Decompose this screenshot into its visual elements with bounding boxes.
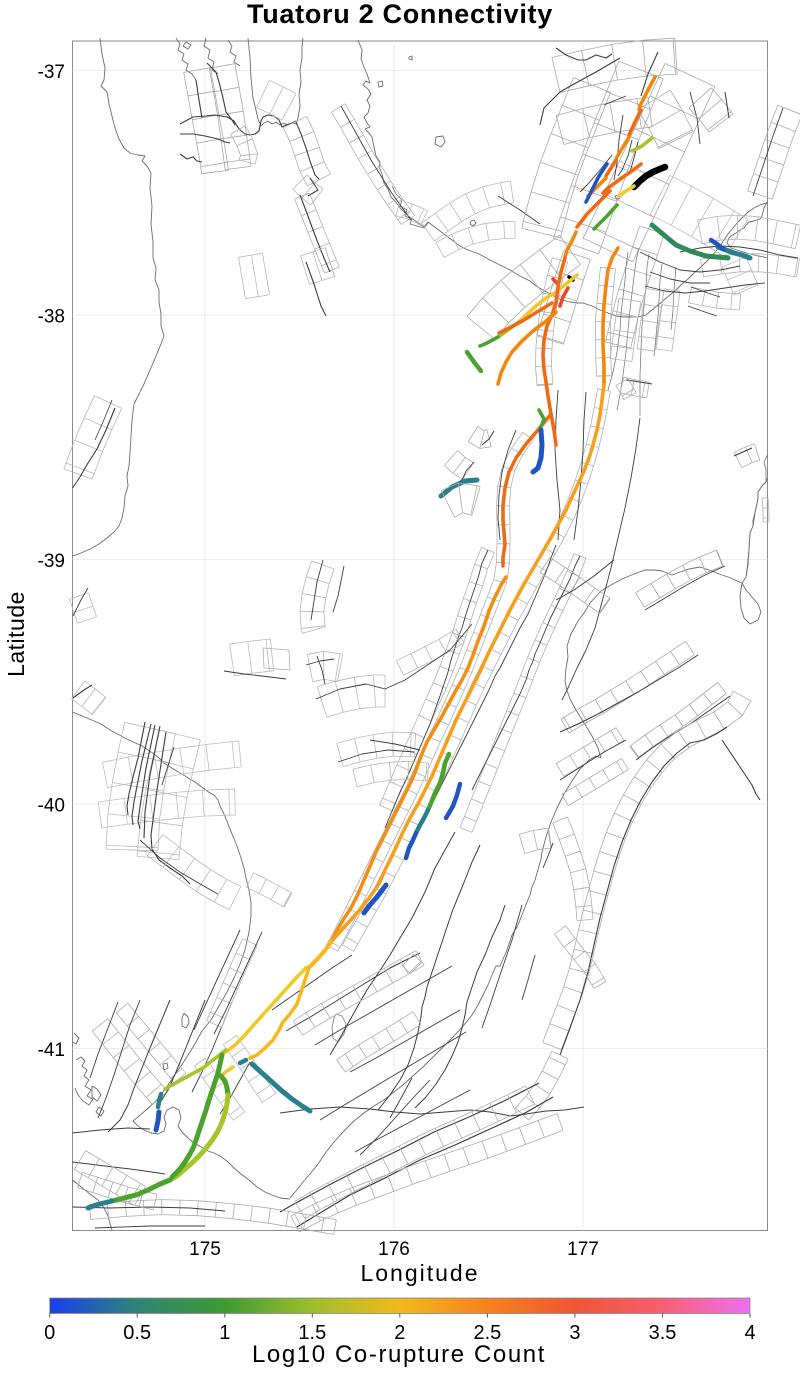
svg-text:0.5: 0.5 <box>123 1322 151 1344</box>
svg-text:-37: -37 <box>38 62 65 83</box>
svg-text:175: 175 <box>189 1239 221 1260</box>
svg-text:3: 3 <box>569 1322 580 1344</box>
svg-text:176: 176 <box>378 1239 410 1260</box>
svg-text:-38: -38 <box>38 307 65 328</box>
svg-text:Latitude: Latitude <box>3 591 29 677</box>
svg-text:4: 4 <box>744 1322 755 1344</box>
svg-text:-41: -41 <box>38 1040 65 1061</box>
svg-text:-40: -40 <box>38 796 65 817</box>
svg-text:1: 1 <box>219 1322 230 1344</box>
svg-text:Tuatoru 2 Connectivity: Tuatoru 2 Connectivity <box>247 0 553 29</box>
svg-text:0: 0 <box>44 1322 55 1344</box>
svg-text:Log10 Co-rupture Count: Log10 Co-rupture Count <box>252 1341 546 1368</box>
svg-text:177: 177 <box>567 1239 599 1260</box>
svg-text:Longitude: Longitude <box>360 1260 479 1286</box>
svg-text:-39: -39 <box>38 551 65 572</box>
svg-text:3.5: 3.5 <box>649 1322 677 1344</box>
